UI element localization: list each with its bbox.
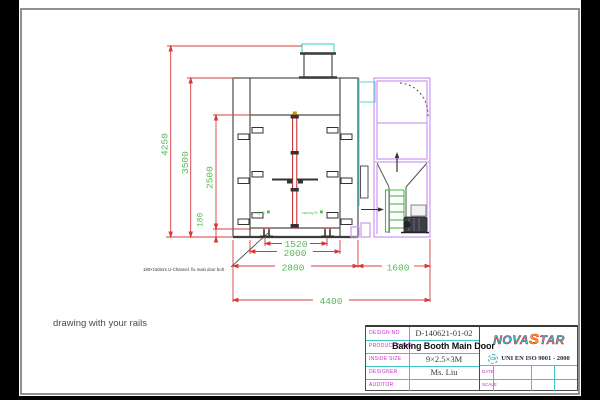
svg-text:opening 90: opening 90 — [249, 211, 265, 215]
svg-text:opening 90: opening 90 — [302, 211, 318, 215]
logo-star: S — [529, 331, 540, 348]
company-logo: NOVASTAR — [479, 328, 579, 352]
dim-3500: 3500 — [180, 151, 191, 174]
design-no-label: DESIGN NO — [369, 327, 409, 340]
leader-line — [231, 233, 268, 267]
fan-motor — [401, 205, 429, 233]
inside-size-label: INSIDE SIZE — [369, 353, 409, 366]
design-no-value: D-140621-01-02 — [409, 327, 479, 340]
dim-2000: 2000 — [284, 248, 307, 259]
dimension-labels: 4250 3500 2500 180 1520 2000 2800 1600 4… — [160, 133, 410, 307]
door-opening-marks: opening 90 opening 90 — [249, 211, 323, 216]
u-channel-bolts — [260, 228, 334, 237]
designer-label: DESIGNER — [369, 366, 409, 379]
title-block: DESIGN NO PRODUCT NAME INSIDE SIZE DESIG… — [365, 325, 578, 391]
exhaust-chimney — [299, 44, 337, 78]
date-label: DATE — [482, 365, 494, 379]
door-swing-arc — [400, 83, 428, 117]
door-seam — [291, 112, 299, 229]
inside-size-value: 9×2.5×3M — [409, 353, 479, 366]
dim-2800: 2800 — [282, 263, 305, 274]
side-panel — [361, 166, 369, 198]
dim-4400: 4400 — [320, 296, 343, 307]
heat-exchanger-coil — [386, 190, 405, 232]
logo-text-pre: NOVA — [493, 333, 529, 347]
dim-180: 180 — [197, 212, 206, 227]
auditor-label: AUDITOR — [369, 379, 409, 392]
rails-note: drawing with your rails — [53, 318, 147, 329]
u-channel-note: 180×150mm U-Channel. fix main door bolt — [143, 267, 225, 272]
scale-label: SCALE — [482, 378, 497, 392]
iso-certification-text: UNI EN ISO 9001 - 2000 — [501, 355, 569, 362]
logo-text-post: TAR — [540, 333, 565, 347]
designer-value: Ms. Liu — [409, 366, 479, 379]
certification: CE UNI EN ISO 9001 - 2000 — [479, 352, 579, 365]
ce-badge-icon: CE — [488, 354, 498, 364]
intake-arrow — [361, 207, 384, 211]
dim-1600: 1600 — [387, 263, 410, 274]
dim-4250: 4250 — [160, 133, 171, 156]
dim-2500: 2500 — [205, 166, 216, 189]
